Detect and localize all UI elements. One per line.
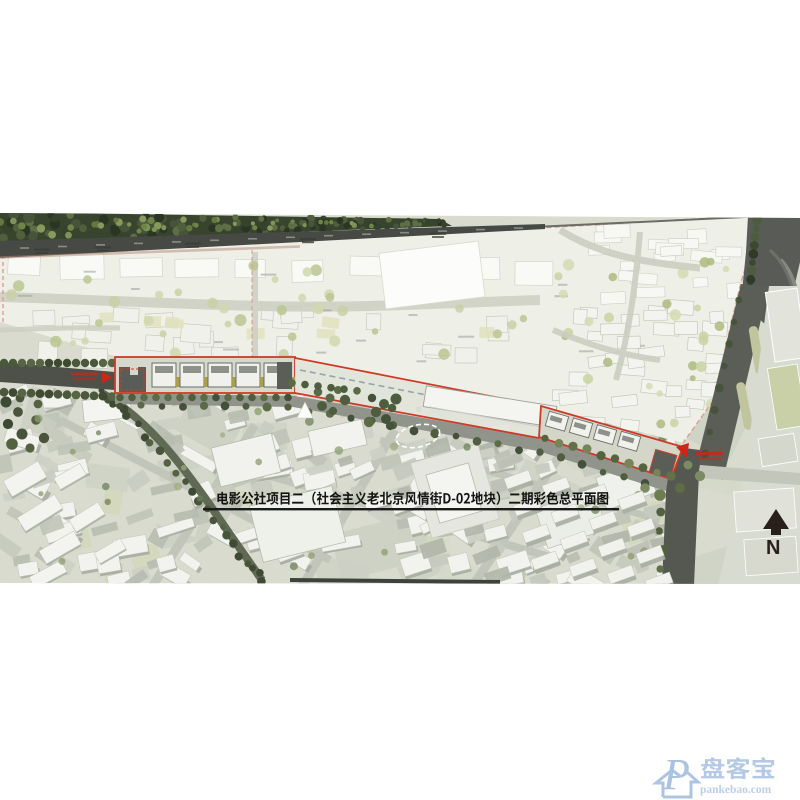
svg-text:pankebao.com: pankebao.com	[700, 784, 772, 796]
svg-text:P: P	[662, 750, 690, 799]
svg-text:N: N	[766, 537, 780, 559]
